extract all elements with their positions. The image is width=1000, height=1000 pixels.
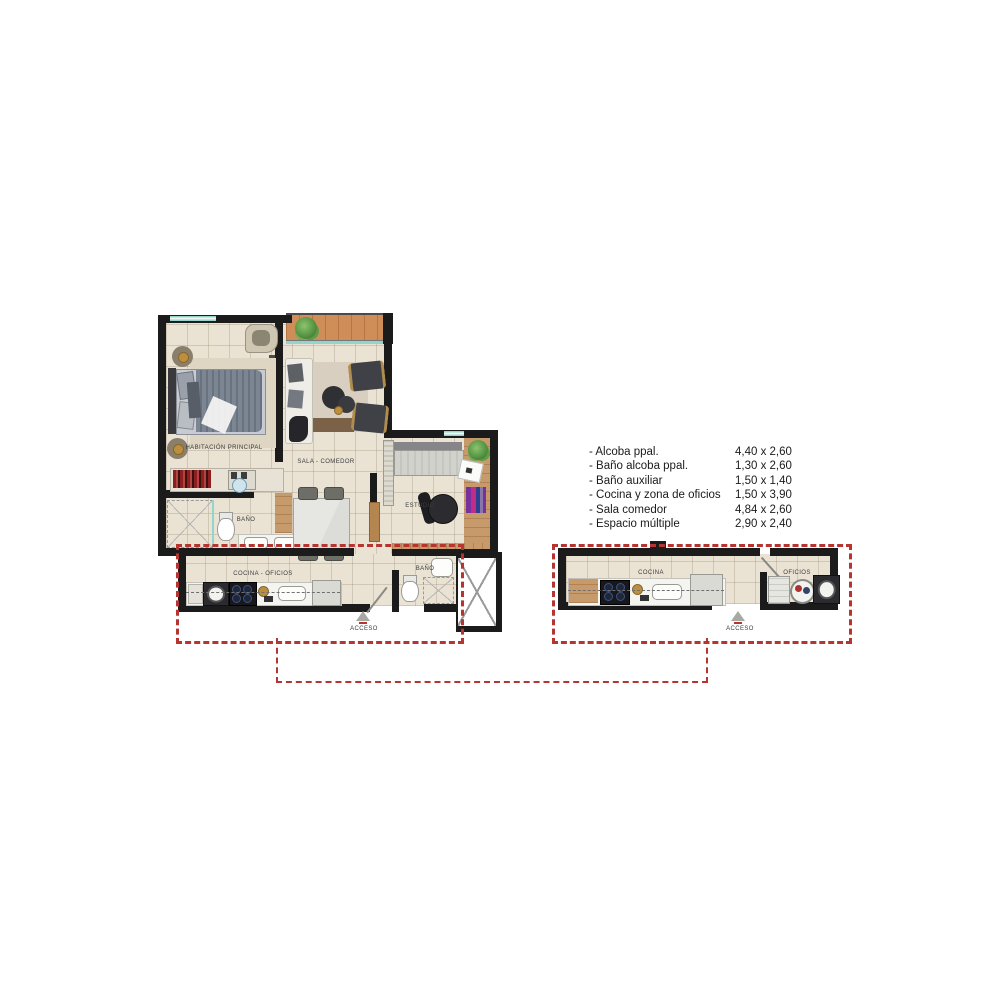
accent-chair-seat [252, 330, 270, 346]
plant [295, 317, 317, 339]
rug-runner [312, 418, 354, 432]
exterior-wall [490, 430, 498, 556]
legend-room-name: - Espacio múltiple [589, 517, 735, 531]
railing [286, 340, 386, 344]
legend-room-name: - Alcoba ppal. [589, 445, 735, 459]
connector-line [276, 681, 708, 683]
books [466, 487, 486, 513]
sideboard [275, 493, 292, 533]
daybed [394, 450, 464, 476]
room-label: SALA - COMEDOR [280, 458, 372, 466]
legend-room-dims: 1,50 x 3,90 [735, 488, 792, 502]
dashed-boundary [552, 544, 852, 644]
interior-wall [370, 473, 377, 503]
room-label: ESTUDIO [392, 502, 448, 510]
legend-room-dims: 2,90 x 2,40 [735, 517, 792, 531]
balcony-edge [286, 313, 386, 315]
legend-row: - Cocina y zona de oficios 1,50 x 3,90 [589, 488, 792, 502]
legend-row: - Baño alcoba ppal. 1,30 x 2,60 [589, 459, 792, 473]
wardrobe-clothes [173, 470, 211, 488]
legend-room-dims: 4,84 x 2,60 [735, 503, 792, 517]
legend: - Alcoba ppal. 4,40 x 2,60 - Baño alcoba… [589, 445, 792, 531]
shower [167, 500, 213, 548]
sofa-pillow [287, 389, 304, 408]
armchair [348, 360, 387, 392]
legend-room-name: - Sala comedor [589, 503, 735, 517]
coffee-table-tray [334, 406, 343, 415]
entry-door [369, 502, 380, 542]
exterior-wall [158, 315, 166, 556]
bed-headboard [168, 368, 176, 434]
pillow [187, 382, 201, 419]
floorplan-canvas: HABITACIÓN PRINCIPAL BAÑO SALA - COMEDOR… [0, 0, 1000, 1000]
lamp [178, 352, 189, 363]
legend-room-dims: 1,30 x 2,60 [735, 459, 792, 473]
dashed-boundary [176, 544, 464, 644]
dining-chair [324, 487, 344, 500]
armchair [351, 402, 390, 434]
daybed-back [394, 442, 462, 450]
legend-row: - Espacio múltiple 2,90 x 2,40 [589, 517, 792, 531]
sofa-throw [289, 416, 308, 442]
shower-screen [212, 500, 214, 546]
radiator [383, 440, 394, 506]
dining-table [293, 498, 350, 550]
legend-row: - Baño auxiliar 1,50 x 1,40 [589, 474, 792, 488]
legend-room-name: - Baño auxiliar [589, 474, 735, 488]
legend-room-name: - Baño alcoba ppal. [589, 459, 735, 473]
legend-row: - Sala comedor 4,84 x 2,60 [589, 503, 792, 517]
legend-row: - Alcoba ppal. 4,40 x 2,60 [589, 445, 792, 459]
dining-chair [298, 487, 318, 500]
connector-line [276, 638, 278, 683]
plant [468, 440, 488, 460]
sofa-pillow [287, 363, 304, 382]
legend-room-dims: 1,50 x 1,40 [735, 474, 792, 488]
window-glass [444, 431, 464, 436]
wardrobe-basin [232, 478, 247, 493]
window-glass [170, 316, 216, 321]
legend-room-dims: 4,40 x 2,60 [735, 445, 792, 459]
room-label: HABITACIÓN PRINCIPAL [168, 444, 280, 452]
room-label: BAÑO [226, 516, 266, 524]
connector-line [706, 638, 708, 683]
papers-mark [466, 467, 473, 473]
legend-room-name: - Cocina y zona de oficios [589, 488, 735, 502]
